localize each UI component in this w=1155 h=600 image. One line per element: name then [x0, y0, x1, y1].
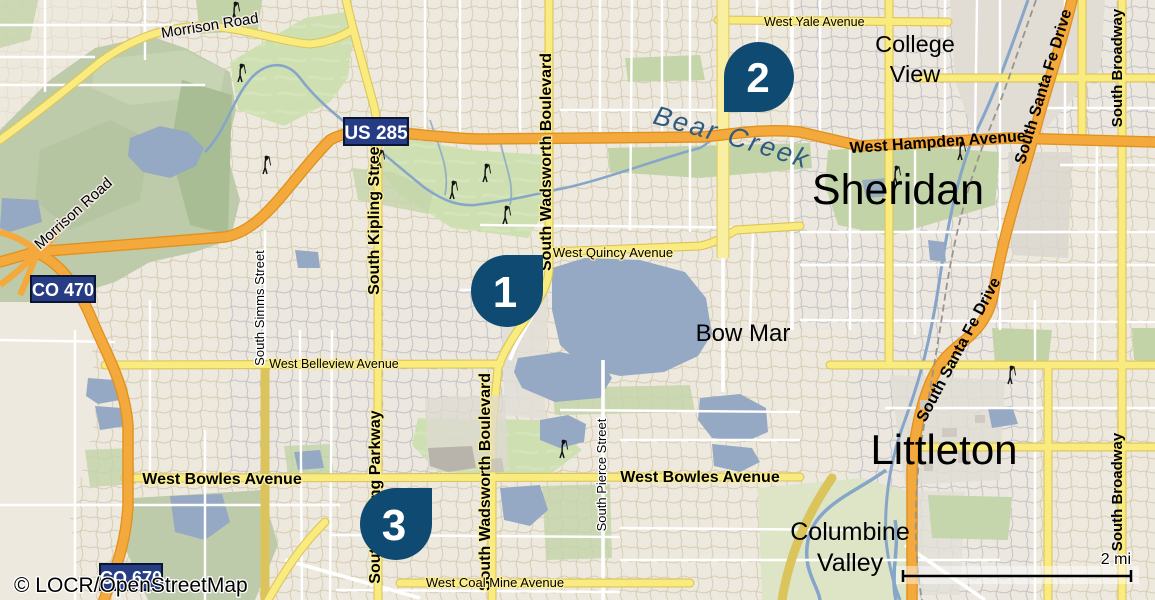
svg-text:College: College [875, 31, 955, 57]
svg-text:West Quincy Avenue: West Quincy Avenue [553, 245, 673, 260]
svg-text:Sheridan: Sheridan [812, 166, 984, 214]
svg-text:© LOCR/OpenStreetMap: © LOCR/OpenStreetMap [14, 574, 248, 597]
svg-text:South Wadsworth Boulevard: South Wadsworth Boulevard [477, 373, 494, 591]
svg-text:West Bowles Avenue: West Bowles Avenue [620, 469, 780, 486]
svg-text:South Pierce Street: South Pierce Street [594, 418, 609, 531]
svg-text:3: 3 [382, 501, 406, 550]
svg-text:South Kipling Street: South Kipling Street [366, 140, 383, 294]
svg-text:West Belleview Avenue: West Belleview Avenue [269, 357, 399, 371]
svg-text:Littleton: Littleton [870, 426, 1017, 473]
svg-text:US 285: US 285 [344, 123, 408, 144]
svg-text:South Wadsworth Boulevard: South Wadsworth Boulevard [538, 53, 555, 271]
svg-text:South Broadway: South Broadway [1109, 432, 1126, 551]
svg-text:West Coal Mine Avenue: West Coal Mine Avenue [426, 575, 564, 590]
svg-text:Bow Mar: Bow Mar [696, 320, 791, 347]
svg-text:South Broadway: South Broadway [1109, 8, 1126, 127]
svg-text:West Yale Avenue: West Yale Avenue [764, 15, 865, 29]
svg-text:View: View [890, 61, 942, 87]
svg-text:South Simms Street: South Simms Street [252, 250, 267, 366]
svg-text:West Bowles Avenue: West Bowles Avenue [142, 471, 302, 488]
svg-text:2 mi: 2 mi [1101, 551, 1131, 568]
svg-text:Columbine: Columbine [790, 518, 910, 546]
svg-text:1: 1 [493, 268, 517, 317]
svg-text:CO 470: CO 470 [32, 280, 94, 300]
svg-text:Valley: Valley [817, 549, 884, 577]
svg-text:2: 2 [746, 54, 769, 101]
